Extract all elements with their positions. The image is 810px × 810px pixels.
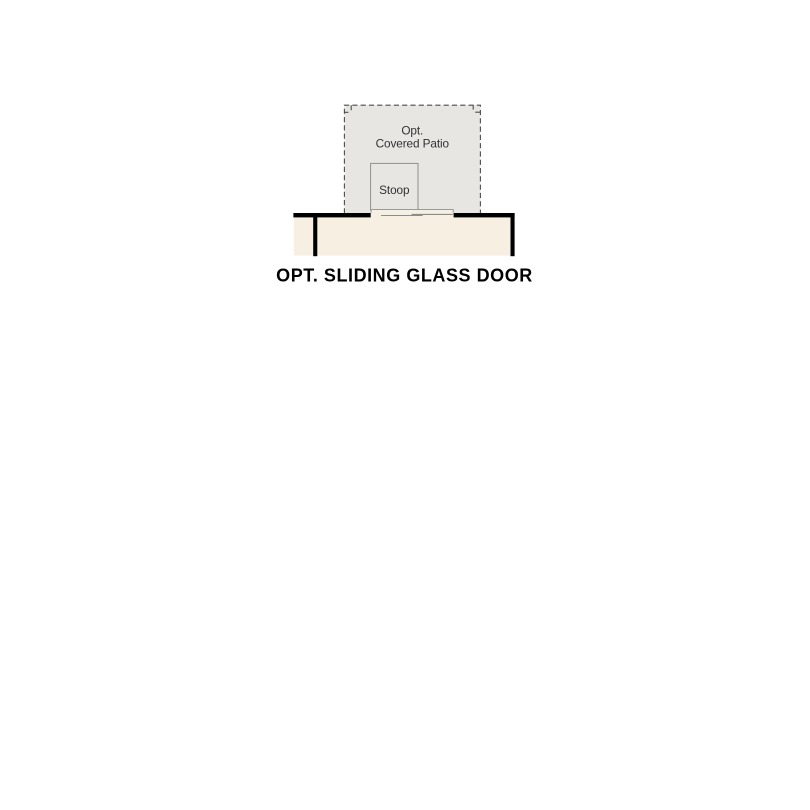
svg-text:Opt.: Opt. [401, 124, 423, 138]
svg-text:Stoop: Stoop [379, 183, 410, 197]
svg-text:OPT. SLIDING GLASS DOOR: OPT. SLIDING GLASS DOOR [276, 266, 533, 286]
svg-text:Covered Patio: Covered Patio [376, 137, 450, 151]
